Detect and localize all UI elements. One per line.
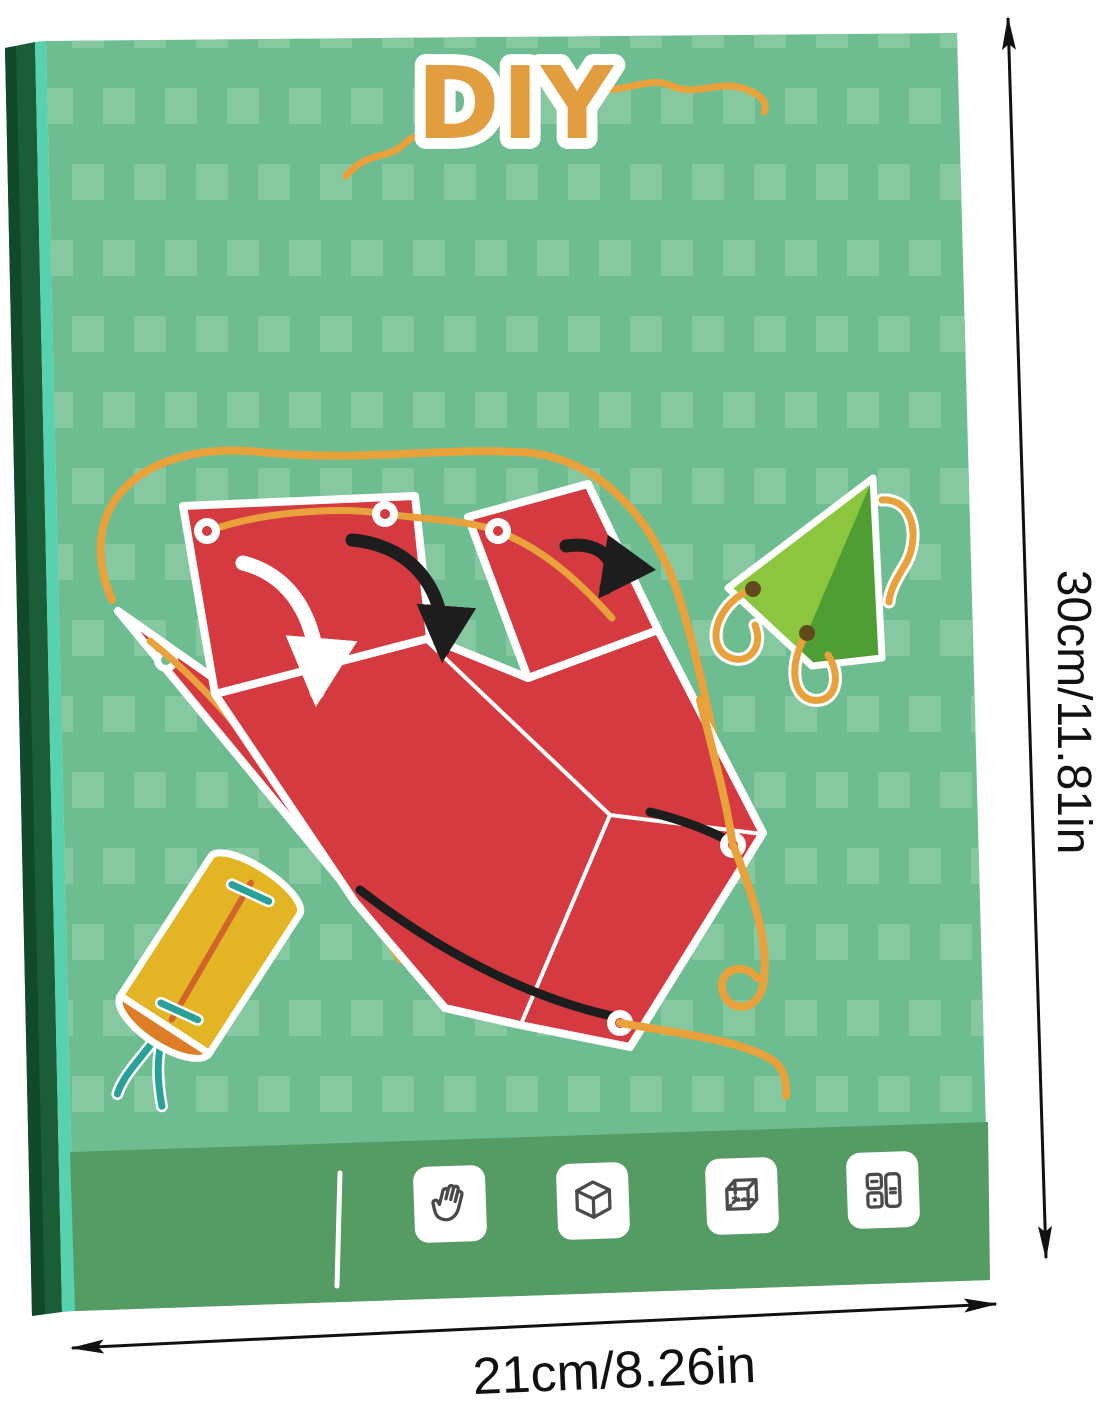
height-dimension-label: 30cm/11.81in xyxy=(1047,570,1100,855)
box-render: DIY xyxy=(0,0,1103,1402)
height-dimension-arrow xyxy=(1008,18,1046,1258)
height-dimension: 30cm/11.81in xyxy=(1008,18,1100,1258)
pyramid-hole xyxy=(799,625,815,641)
width-dimension-arrow xyxy=(72,1304,996,1348)
footer-divider xyxy=(337,1173,340,1286)
footer-icon-tile-3 xyxy=(705,1157,780,1235)
width-dimension: 21cm/8.26in xyxy=(72,1304,996,1402)
box-title: DIY xyxy=(417,45,616,162)
footer-icon-tile-1 xyxy=(413,1165,488,1243)
footer-icon-tile-2 xyxy=(556,1162,631,1240)
width-dimension-label: 21cm/8.26in xyxy=(471,1336,757,1402)
footer-icon-tile-4 xyxy=(846,1151,921,1229)
pyramid-hole xyxy=(745,581,761,597)
product-box-image: DIY xyxy=(0,0,1103,1402)
